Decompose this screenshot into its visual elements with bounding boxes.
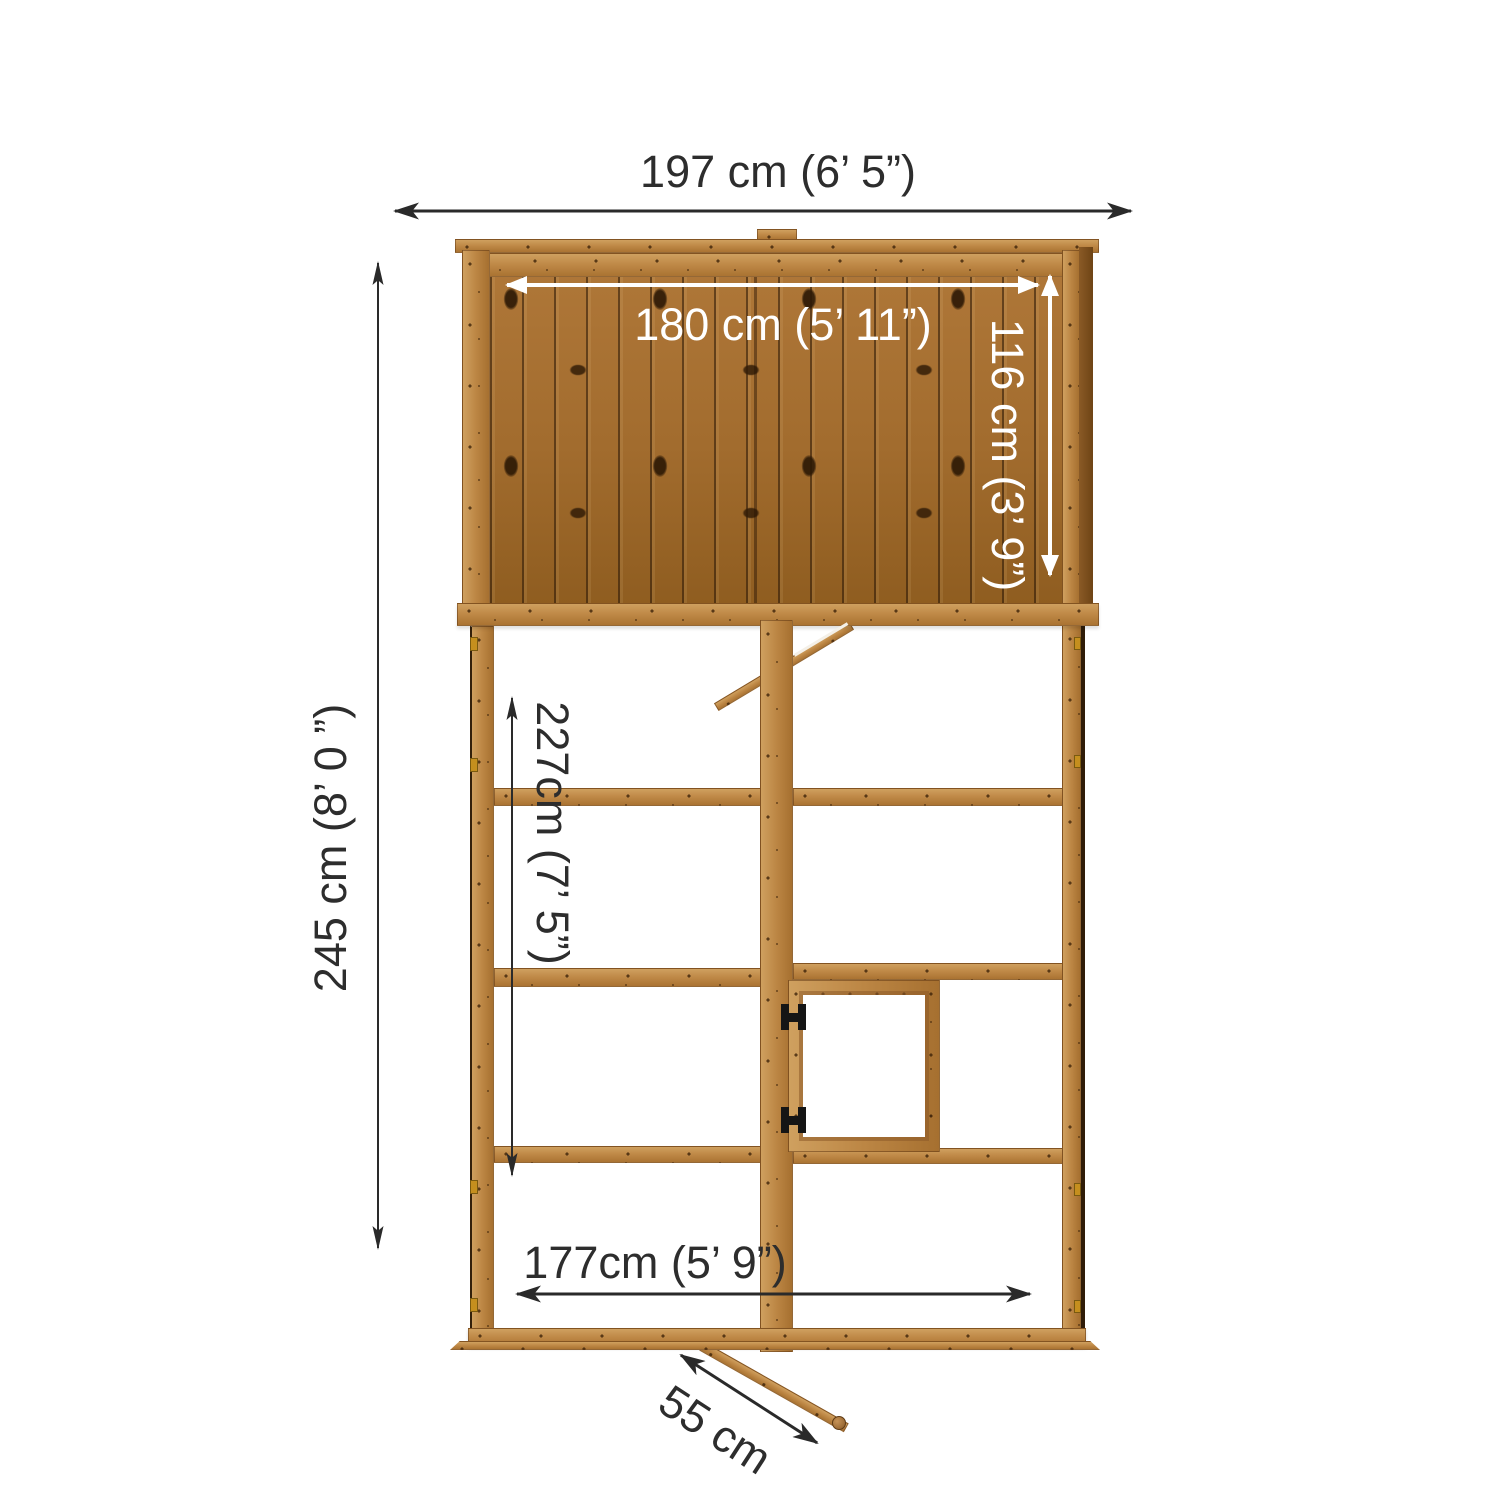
panel-height-arrow	[1041, 274, 1059, 577]
left-post-hinge-mark	[470, 1180, 478, 1194]
overall-height-label: 245 cm (8’ 0 ”)	[305, 704, 357, 992]
frame-inner-height-arrow	[503, 696, 521, 1177]
panel-width-arrow	[505, 276, 1040, 294]
door-width-label: 55 cm	[649, 1375, 780, 1485]
panel-top-cap	[455, 239, 1099, 253]
base-inner-width-label: 177cm (5’ 9”)	[523, 1237, 786, 1289]
panel-right-edge-board	[1079, 247, 1093, 606]
right-post-hinge-mark	[1074, 1300, 1081, 1313]
right-rail-upper	[793, 788, 1063, 806]
panel-right-frame	[1062, 250, 1080, 606]
panel-top-batten	[462, 253, 1092, 277]
overall-width-arrow	[393, 202, 1133, 220]
left-rail-middle	[494, 968, 761, 987]
panel-width-label: 180 cm (5’ 11”)	[634, 299, 932, 351]
hatch-door-opening	[803, 995, 925, 1137]
base-board	[450, 1341, 1100, 1350]
left-post	[470, 626, 494, 1331]
right-post-edge	[1081, 625, 1085, 1348]
right-post-hinge-mark	[1074, 1183, 1081, 1196]
panel-height-label: 116 cm (3’ 9”)	[981, 319, 1033, 592]
right-post-hinge-mark	[1074, 755, 1081, 768]
hatch-hinge-top-icon	[781, 1004, 806, 1030]
frame-inner-height-label: 227cm (7’ 5”)	[526, 701, 578, 964]
left-post-hinge-mark	[470, 1298, 478, 1312]
right-post-hinge-mark	[1074, 637, 1081, 650]
right-rail-window-top	[793, 963, 1063, 980]
dimension-diagram: 197 cm (6’ 5”) 180 cm (5’ 11”) 116 cm (3…	[0, 0, 1500, 1500]
left-post-hinge-mark	[470, 758, 478, 772]
door-latch-bar	[794, 622, 849, 657]
panel-left-frame	[462, 250, 490, 606]
left-rail-lower	[494, 1146, 761, 1163]
hatch-hinge-bottom-icon	[781, 1107, 806, 1133]
overall-height-arrow	[369, 261, 387, 1250]
door-knob	[832, 1416, 846, 1430]
overall-width-label: 197 cm (6’ 5”)	[640, 146, 916, 198]
left-post-hinge-mark	[470, 637, 478, 651]
right-post	[1062, 625, 1081, 1348]
